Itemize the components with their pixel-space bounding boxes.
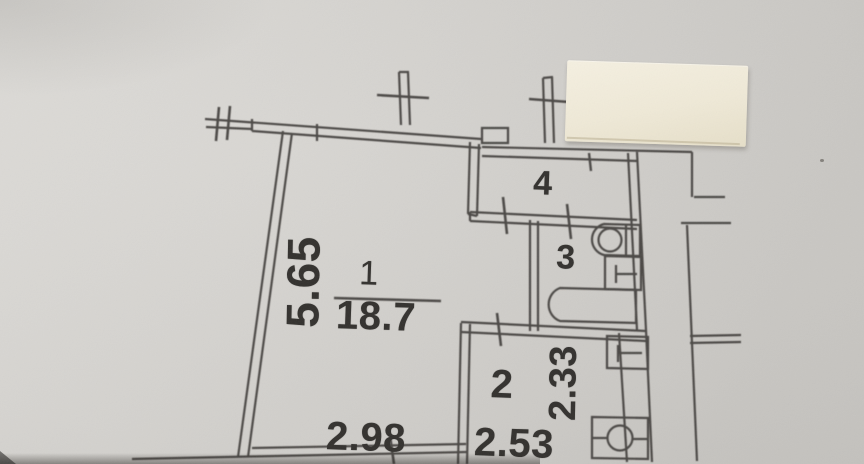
wall-line bbox=[690, 342, 741, 343]
wall-line bbox=[468, 142, 470, 214]
dust-speck bbox=[820, 159, 824, 162]
washbasin-bowl bbox=[599, 229, 622, 252]
wall-line bbox=[458, 323, 461, 464]
door-tick bbox=[567, 204, 571, 239]
axis-line bbox=[399, 72, 401, 125]
axis-tick bbox=[529, 99, 569, 102]
blank-paper-sticker bbox=[565, 60, 748, 147]
wall-line bbox=[467, 324, 470, 464]
axis-line bbox=[552, 77, 554, 143]
bathroom-walls bbox=[530, 220, 538, 331]
door-tick bbox=[497, 313, 501, 346]
wall-line bbox=[252, 131, 481, 148]
kitchen-walls bbox=[458, 323, 470, 464]
wall-line bbox=[690, 335, 741, 336]
stove-icon bbox=[592, 417, 648, 459]
bathtub-icon bbox=[549, 288, 636, 323]
axis-tick bbox=[377, 95, 429, 98]
dim-room1-height: 5.65 bbox=[275, 236, 331, 328]
wall-line bbox=[477, 144, 479, 216]
wall-vent-box bbox=[482, 128, 508, 143]
axis-hash-mark bbox=[227, 106, 230, 140]
wall-line bbox=[637, 152, 652, 462]
room2-number: 2 bbox=[490, 362, 514, 408]
photo-bottom-shadow bbox=[0, 453, 540, 464]
room4-number: 4 bbox=[533, 164, 554, 204]
wall-line bbox=[482, 156, 638, 161]
stove-burner bbox=[608, 426, 633, 451]
axis-hash-mark bbox=[216, 107, 219, 141]
axis-line bbox=[408, 72, 410, 125]
wall-line bbox=[482, 147, 692, 152]
bathtub-outline bbox=[549, 288, 636, 323]
room1-number: 1 bbox=[359, 254, 380, 294]
door-tick bbox=[503, 197, 507, 234]
dim-room2-height: 2.33 bbox=[542, 345, 586, 422]
floorplan-photo: 5.65 1 18.7 2.98 4 3 2 2.33 2.53 bbox=[0, 0, 864, 464]
axis-line bbox=[543, 78, 545, 143]
axis-cap bbox=[543, 77, 553, 78]
room1-area: 18.7 bbox=[335, 293, 416, 341]
wall-line bbox=[470, 212, 637, 220]
hall-walls bbox=[468, 128, 692, 239]
door-tick bbox=[589, 153, 591, 171]
top-axis-marks bbox=[377, 72, 569, 143]
neighbor-unit-walls bbox=[681, 152, 741, 461]
room3-number: 3 bbox=[556, 238, 577, 278]
